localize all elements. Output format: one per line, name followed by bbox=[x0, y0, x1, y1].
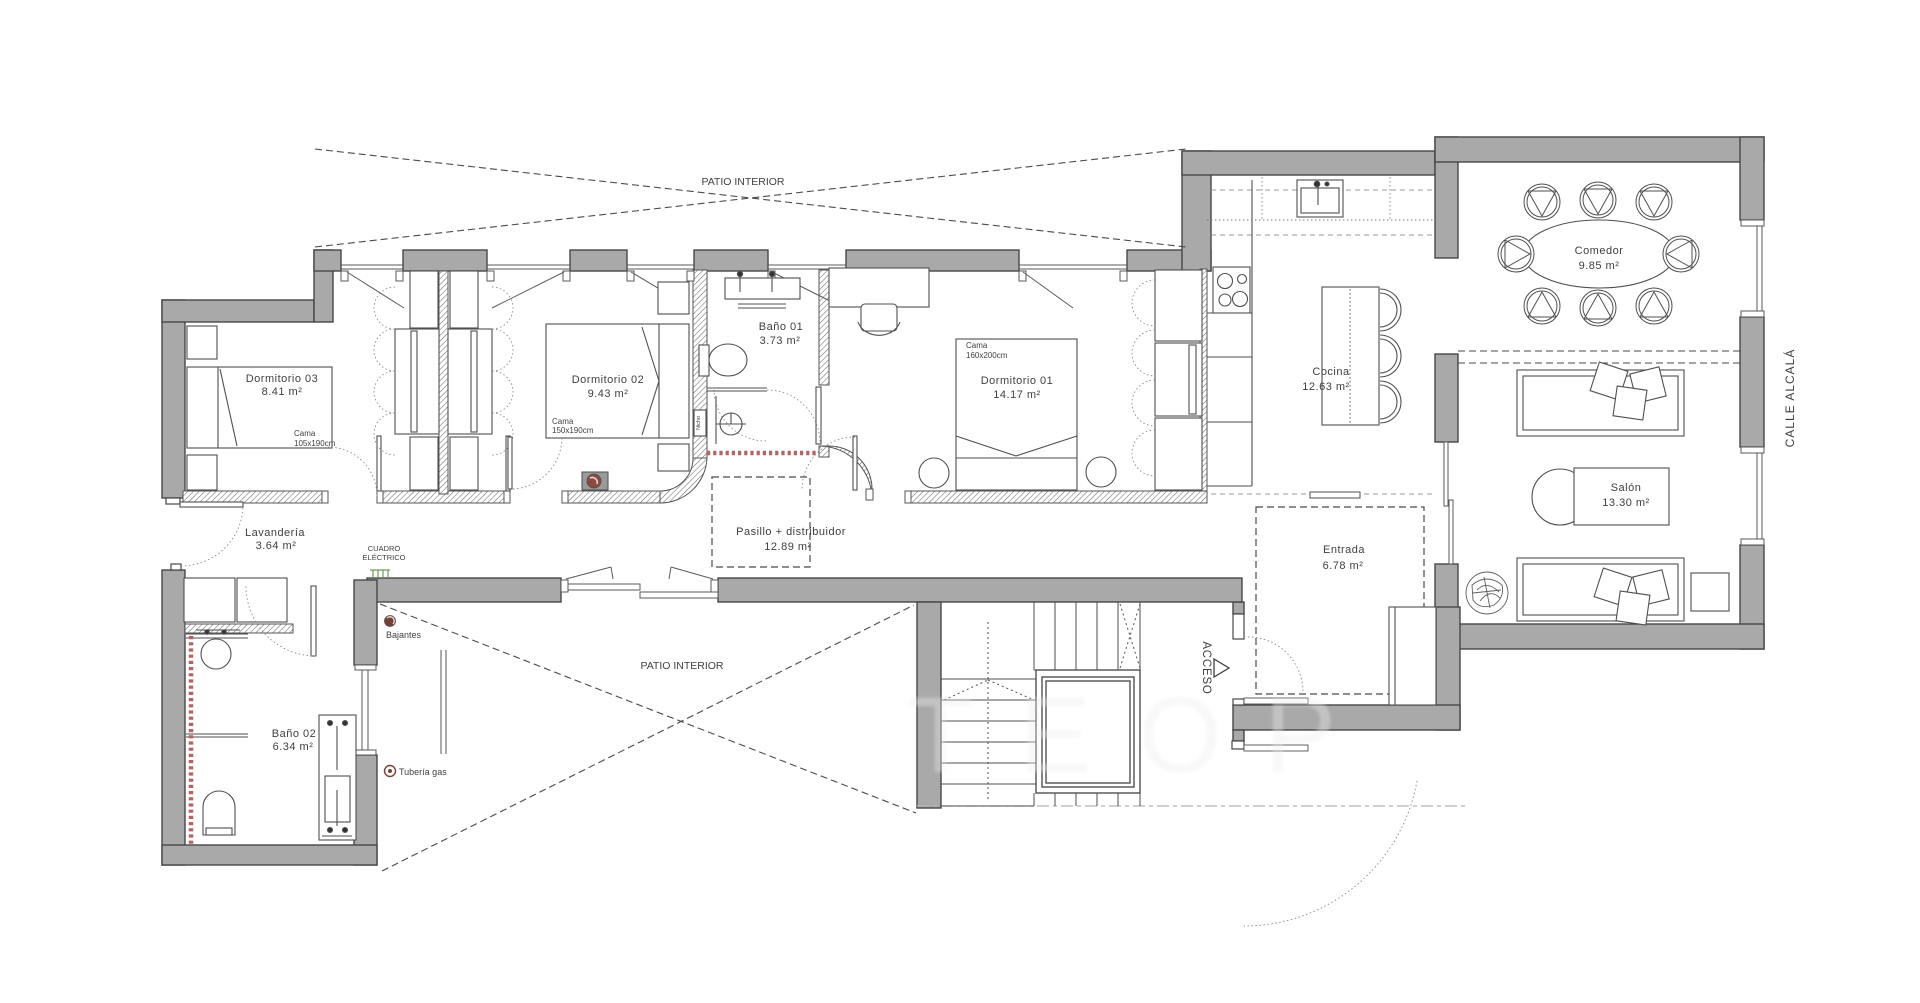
svg-text:13.30 m²: 13.30 m² bbox=[1602, 497, 1649, 509]
svg-text:Salón: Salón bbox=[1611, 482, 1642, 494]
svg-text:9.43 m²: 9.43 m² bbox=[588, 388, 629, 400]
svg-text:Cocina: Cocina bbox=[1312, 366, 1350, 378]
svg-text:Comedor: Comedor bbox=[1575, 245, 1624, 257]
svg-text:Baño 01: Baño 01 bbox=[759, 321, 803, 333]
svg-text:Cama: Cama bbox=[294, 429, 316, 438]
svg-text:Entrada: Entrada bbox=[1323, 544, 1365, 556]
svg-text:Lavandería: Lavandería bbox=[245, 527, 305, 539]
svg-text:9.85 m²: 9.85 m² bbox=[1579, 260, 1620, 272]
svg-text:Nicho: Nicho bbox=[696, 416, 702, 430]
svg-text:O: O bbox=[1138, 674, 1222, 795]
svg-text:3.64 m²: 3.64 m² bbox=[256, 540, 297, 552]
svg-text:CALLE ALCALÁ: CALLE ALCALÁ bbox=[1782, 349, 1797, 448]
svg-text:Dormitorio 03: Dormitorio 03 bbox=[246, 373, 319, 385]
svg-text:105x190cm: 105x190cm bbox=[294, 439, 336, 448]
svg-text:Dormitorio 02: Dormitorio 02 bbox=[572, 374, 645, 386]
svg-text:PATIO INTERIOR: PATIO INTERIOR bbox=[640, 660, 723, 672]
svg-text:Pasillo + distribuidor: Pasillo + distribuidor bbox=[736, 526, 846, 538]
svg-text:ELÉCTRICO: ELÉCTRICO bbox=[363, 553, 406, 562]
svg-text:12.63 m²: 12.63 m² bbox=[1302, 381, 1349, 393]
svg-text:Cama: Cama bbox=[966, 341, 988, 350]
svg-text:150x190cm: 150x190cm bbox=[552, 426, 594, 435]
svg-text:Baño 02: Baño 02 bbox=[272, 728, 316, 740]
svg-text:8.41 m²: 8.41 m² bbox=[262, 386, 303, 398]
svg-text:Tubería gas: Tubería gas bbox=[399, 767, 447, 777]
svg-text:T: T bbox=[907, 674, 973, 795]
svg-text:CUADRO: CUADRO bbox=[368, 544, 401, 553]
svg-text:PATIO INTERIOR: PATIO INTERIOR bbox=[701, 176, 784, 188]
svg-text:Bajantes: Bajantes bbox=[386, 630, 422, 640]
svg-text:Cama: Cama bbox=[552, 417, 574, 426]
svg-text:Dormitorio 01: Dormitorio 01 bbox=[981, 375, 1054, 387]
svg-text:E: E bbox=[1019, 674, 1091, 795]
svg-text:P: P bbox=[1264, 674, 1336, 795]
svg-text:6.78 m²: 6.78 m² bbox=[1323, 560, 1364, 572]
svg-text:3.73 m²: 3.73 m² bbox=[760, 335, 801, 347]
svg-text:12.89 m²: 12.89 m² bbox=[764, 541, 811, 553]
svg-text:6.34 m²: 6.34 m² bbox=[273, 741, 314, 753]
svg-text:14.17 m²: 14.17 m² bbox=[993, 389, 1040, 401]
svg-text:160x200cm: 160x200cm bbox=[966, 351, 1008, 360]
